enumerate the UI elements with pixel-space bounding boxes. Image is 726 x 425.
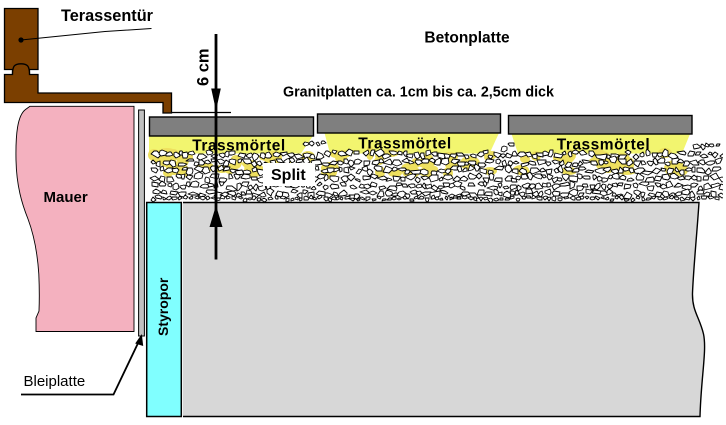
svg-text:Split: Split: [271, 167, 306, 184]
svg-text:Trassmörtel: Trassmörtel: [557, 137, 650, 154]
svg-text:Granitplatten ca. 1cm bis ca.: Granitplatten ca. 1cm bis ca. 2,5cm dick: [283, 85, 554, 101]
svg-text:Styropor: Styropor: [155, 277, 171, 336]
svg-text:Mauer: Mauer: [44, 189, 88, 206]
svg-text:6 cm: 6 cm: [195, 48, 213, 86]
svg-text:Trassmörtel: Trassmörtel: [358, 136, 451, 153]
svg-text:Betonplatte: Betonplatte: [424, 30, 510, 47]
svg-text:Trassmörtel: Trassmörtel: [192, 138, 285, 155]
svg-text:Bleiplatte: Bleiplatte: [24, 373, 86, 390]
svg-text:Terassentür: Terassentür: [61, 7, 154, 25]
